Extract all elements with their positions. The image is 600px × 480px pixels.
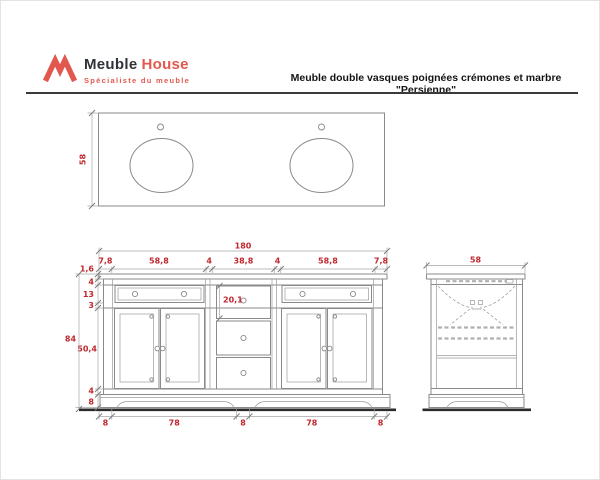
dim-front-left-seg1: 1,6 — [80, 265, 95, 274]
drawer-knob — [350, 291, 355, 296]
sink-basin-left — [130, 139, 193, 193]
louver-panel — [333, 314, 367, 382]
drawer-knob — [181, 291, 186, 296]
dim-front-left-seg7: 8 — [88, 398, 94, 407]
dim-front-left-seg2: 4 — [88, 278, 94, 287]
dim-front-left-seg6: 4 — [88, 387, 94, 396]
front-overall-height-dimension: 84 — [65, 271, 82, 412]
faucet-hole-left — [158, 124, 164, 130]
plinth-side — [429, 395, 524, 408]
dim-front-top-seg6: 58,8 — [318, 257, 338, 266]
dim-front-top-seg4: 38,8 — [234, 257, 254, 266]
dim-front-bottom-seg1: 8 — [103, 419, 109, 428]
side-view-drawing: 58 — [423, 256, 532, 410]
dim-front-center-drawer-height: 20,1 — [223, 296, 243, 305]
dim-front-top-seg1: 7,8 — [98, 257, 113, 266]
technical-drawing: 58 — [1, 1, 600, 480]
drawer-knob — [241, 370, 246, 375]
side-depth-dimension: 58 — [424, 256, 529, 274]
side-hidden-sink — [438, 286, 515, 325]
dim-front-bottom-seg4: 78 — [306, 419, 318, 428]
door-left-2 — [161, 309, 205, 389]
sink-basin-right — [290, 139, 353, 193]
plinth-front — [100, 395, 390, 408]
right-drawer — [282, 286, 372, 303]
door-right-1 — [282, 309, 327, 389]
door-left-1 — [115, 309, 160, 389]
vanity-countertop — [99, 274, 387, 279]
side-drain — [471, 301, 483, 310]
drawer-knob — [132, 291, 137, 296]
cremone-handles — [155, 346, 332, 351]
front-view-drawing: 180 7,8 58,8 4 38,8 4 58,8 7,8 1,6 4 13 — [65, 242, 396, 428]
countertop-plan — [99, 113, 385, 206]
louver-panel — [120, 314, 154, 382]
side-backsplash-block — [506, 280, 513, 284]
side-body — [431, 279, 523, 395]
dim-front-overall-height: 84 — [65, 335, 77, 344]
spec-sheet-page: MeubleHouse Spécialiste du meuble Meuble… — [0, 0, 600, 480]
dim-front-overall-width: 180 — [235, 242, 252, 251]
louver-panel — [287, 314, 321, 382]
side-inner-frame — [437, 279, 517, 389]
dim-front-left-seg3: 13 — [83, 290, 94, 299]
dim-front-bottom-seg3: 8 — [240, 419, 246, 428]
front-left-chain-dimension: 1,6 4 13 3 50,4 4 8 — [76, 265, 104, 411]
drawer-knob — [241, 335, 246, 340]
drawer-knob — [300, 291, 305, 296]
top-view-depth-dimension: 58 — [79, 110, 99, 209]
door-right-2 — [328, 309, 373, 389]
dim-front-left-seg4: 3 — [88, 301, 94, 310]
front-bottom-chain-dimension: 8 78 8 78 8 — [96, 409, 390, 428]
dim-front-bottom-seg5: 8 — [378, 419, 384, 428]
front-top-chain-dimension: 7,8 58,8 4 38,8 4 58,8 7,8 — [96, 257, 390, 274]
dim-front-top-seg5: 4 — [275, 257, 281, 266]
louver-panel — [166, 314, 199, 382]
dim-top-depth: 58 — [79, 154, 88, 166]
center-drawer-height-dimension: 20,1 — [217, 283, 244, 322]
dim-front-left-seg5: 50,4 — [77, 345, 97, 354]
side-countertop — [427, 274, 526, 279]
dim-front-top-seg2: 58,8 — [149, 257, 169, 266]
left-drawer — [115, 286, 204, 303]
dim-front-bottom-seg2: 78 — [169, 419, 181, 428]
dim-side-depth: 58 — [470, 256, 482, 265]
top-view-drawing: 58 — [79, 110, 385, 209]
dim-front-top-seg7: 7,8 — [374, 257, 389, 266]
dim-front-top-seg3: 4 — [206, 257, 212, 266]
faucet-hole-right — [319, 124, 325, 130]
